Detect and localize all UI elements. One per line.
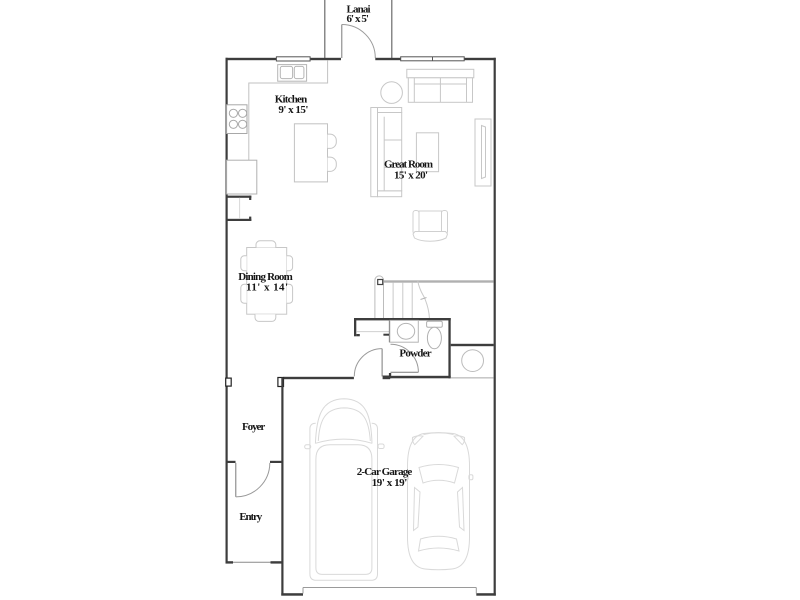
svg-text:6' x 5': 6' x 5' [346,13,369,25]
svg-text:9' x 15': 9' x 15' [278,104,308,116]
svg-text:Foyer: Foyer [242,421,265,433]
svg-text:11' x 14': 11' x 14' [246,282,288,294]
svg-text:15' x 20': 15' x 20' [394,169,428,181]
svg-text:Powder: Powder [399,347,431,359]
svg-text:Entry: Entry [239,511,262,523]
svg-text:19' x 19': 19' x 19' [372,477,408,489]
